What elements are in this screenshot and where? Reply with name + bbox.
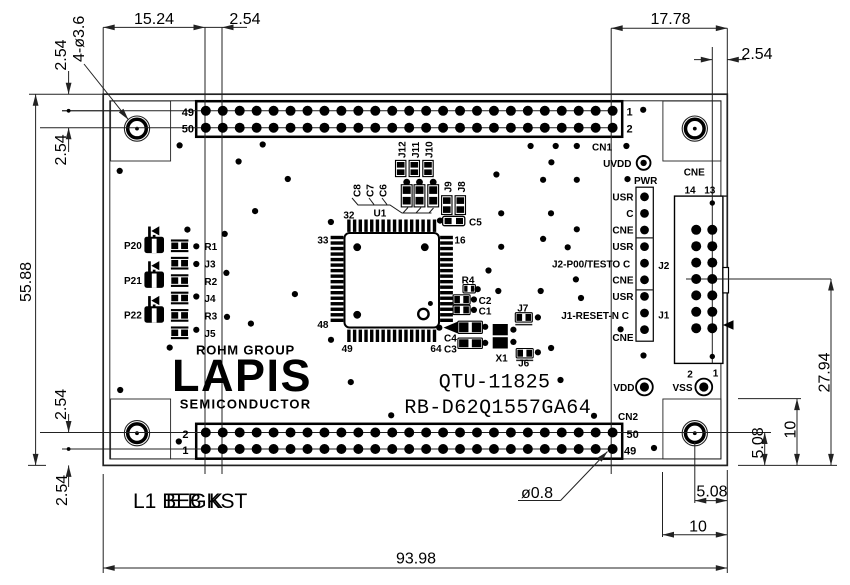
svg-text:J1: J1 (658, 311, 670, 322)
svg-text:J8: J8 (457, 181, 468, 193)
svg-text:J5: J5 (204, 329, 216, 340)
svg-text:13: 13 (704, 186, 716, 197)
svg-text:10: 10 (783, 421, 800, 439)
svg-text:CNE: CNE (684, 167, 705, 178)
svg-text:10: 10 (689, 519, 707, 536)
svg-text:X1: X1 (496, 354, 509, 365)
svg-text:PWR: PWR (634, 176, 658, 187)
svg-text:J11: J11 (411, 141, 422, 158)
svg-text:5.08: 5.08 (696, 484, 727, 501)
svg-text:1: 1 (182, 445, 188, 457)
svg-text:17.78: 17.78 (650, 11, 690, 28)
svg-text:4-ø3.6: 4-ø3.6 (71, 16, 88, 62)
svg-text:16: 16 (454, 236, 466, 247)
svg-text:LAPIS: LAPIS (172, 350, 312, 401)
svg-text:2.54: 2.54 (53, 134, 70, 165)
svg-text:R1: R1 (204, 242, 217, 253)
svg-text:CN2: CN2 (618, 412, 638, 423)
svg-text:QTU-11825: QTU-11825 (439, 372, 551, 395)
svg-text:C7: C7 (366, 184, 377, 197)
svg-text:2.54: 2.54 (53, 39, 70, 70)
svg-text:2.54: 2.54 (53, 389, 70, 420)
svg-text:P22: P22 (124, 311, 142, 322)
svg-text:49: 49 (182, 107, 194, 119)
svg-text:J10: J10 (425, 141, 436, 158)
svg-text:2: 2 (182, 429, 188, 441)
svg-text:33: 33 (317, 236, 329, 247)
svg-text:15.24: 15.24 (134, 11, 174, 28)
svg-text:CNE: CNE (612, 333, 633, 344)
svg-text:32: 32 (343, 210, 355, 221)
svg-text:EBK: EBK (166, 490, 231, 513)
svg-text:2.54: 2.54 (741, 46, 772, 63)
svg-text:2: 2 (687, 370, 693, 381)
svg-text:J6: J6 (518, 358, 530, 369)
svg-text:J4: J4 (204, 294, 216, 305)
svg-text:27.94: 27.94 (817, 352, 834, 392)
svg-text:RB-D62Q1557GA64: RB-D62Q1557GA64 (404, 397, 591, 420)
svg-text:CN1: CN1 (592, 143, 612, 154)
svg-text:J2-P00/TESTO C: J2-P00/TESTO C (552, 260, 630, 271)
svg-text:2: 2 (627, 124, 633, 136)
svg-text:SEMICONDUCTOR: SEMICONDUCTOR (180, 396, 312, 411)
svg-text:5.08: 5.08 (750, 427, 767, 458)
svg-text:UVDD: UVDD (603, 159, 631, 170)
svg-text:CNE: CNE (612, 275, 633, 286)
svg-text:C1: C1 (479, 307, 492, 318)
svg-text:R3: R3 (204, 312, 217, 323)
svg-text:USR: USR (612, 292, 634, 303)
svg-text:C3: C3 (444, 345, 457, 356)
svg-text:49: 49 (342, 344, 354, 355)
svg-text:C6: C6 (379, 184, 390, 197)
svg-text:C: C (626, 209, 633, 220)
svg-text:VDD: VDD (613, 383, 634, 394)
svg-text:50: 50 (182, 124, 194, 136)
svg-text:P21: P21 (124, 276, 142, 287)
svg-text:J12: J12 (398, 141, 409, 158)
svg-text:49: 49 (624, 445, 636, 457)
svg-text:93.98: 93.98 (396, 551, 436, 568)
svg-text:2.54: 2.54 (229, 11, 260, 28)
svg-text:USR: USR (612, 192, 634, 203)
svg-text:55.88: 55.88 (18, 262, 35, 302)
svg-text:J1-RESET-N C: J1-RESET-N C (561, 311, 629, 322)
svg-text:J9: J9 (444, 181, 455, 193)
svg-text:J3: J3 (204, 259, 216, 270)
svg-text:C5: C5 (469, 217, 482, 228)
svg-text:ø0.8: ø0.8 (521, 485, 553, 502)
svg-text:P20: P20 (124, 241, 142, 252)
svg-text:50: 50 (627, 429, 639, 441)
svg-text:48: 48 (317, 320, 329, 331)
svg-text:14: 14 (684, 186, 696, 197)
svg-text:1: 1 (713, 368, 719, 379)
svg-text:C2: C2 (479, 296, 492, 307)
svg-text:2.54: 2.54 (54, 475, 71, 506)
svg-text:J2: J2 (658, 261, 670, 272)
svg-text:1: 1 (627, 107, 633, 119)
svg-text:C8: C8 (353, 184, 364, 197)
svg-text:R2: R2 (204, 277, 217, 288)
svg-text:VSS: VSS (672, 383, 692, 394)
svg-text:USR: USR (612, 242, 634, 253)
svg-text:CNE: CNE (612, 226, 633, 237)
svg-text:U1: U1 (374, 209, 387, 220)
svg-text:64: 64 (430, 344, 442, 355)
svg-text:C4: C4 (444, 333, 457, 344)
